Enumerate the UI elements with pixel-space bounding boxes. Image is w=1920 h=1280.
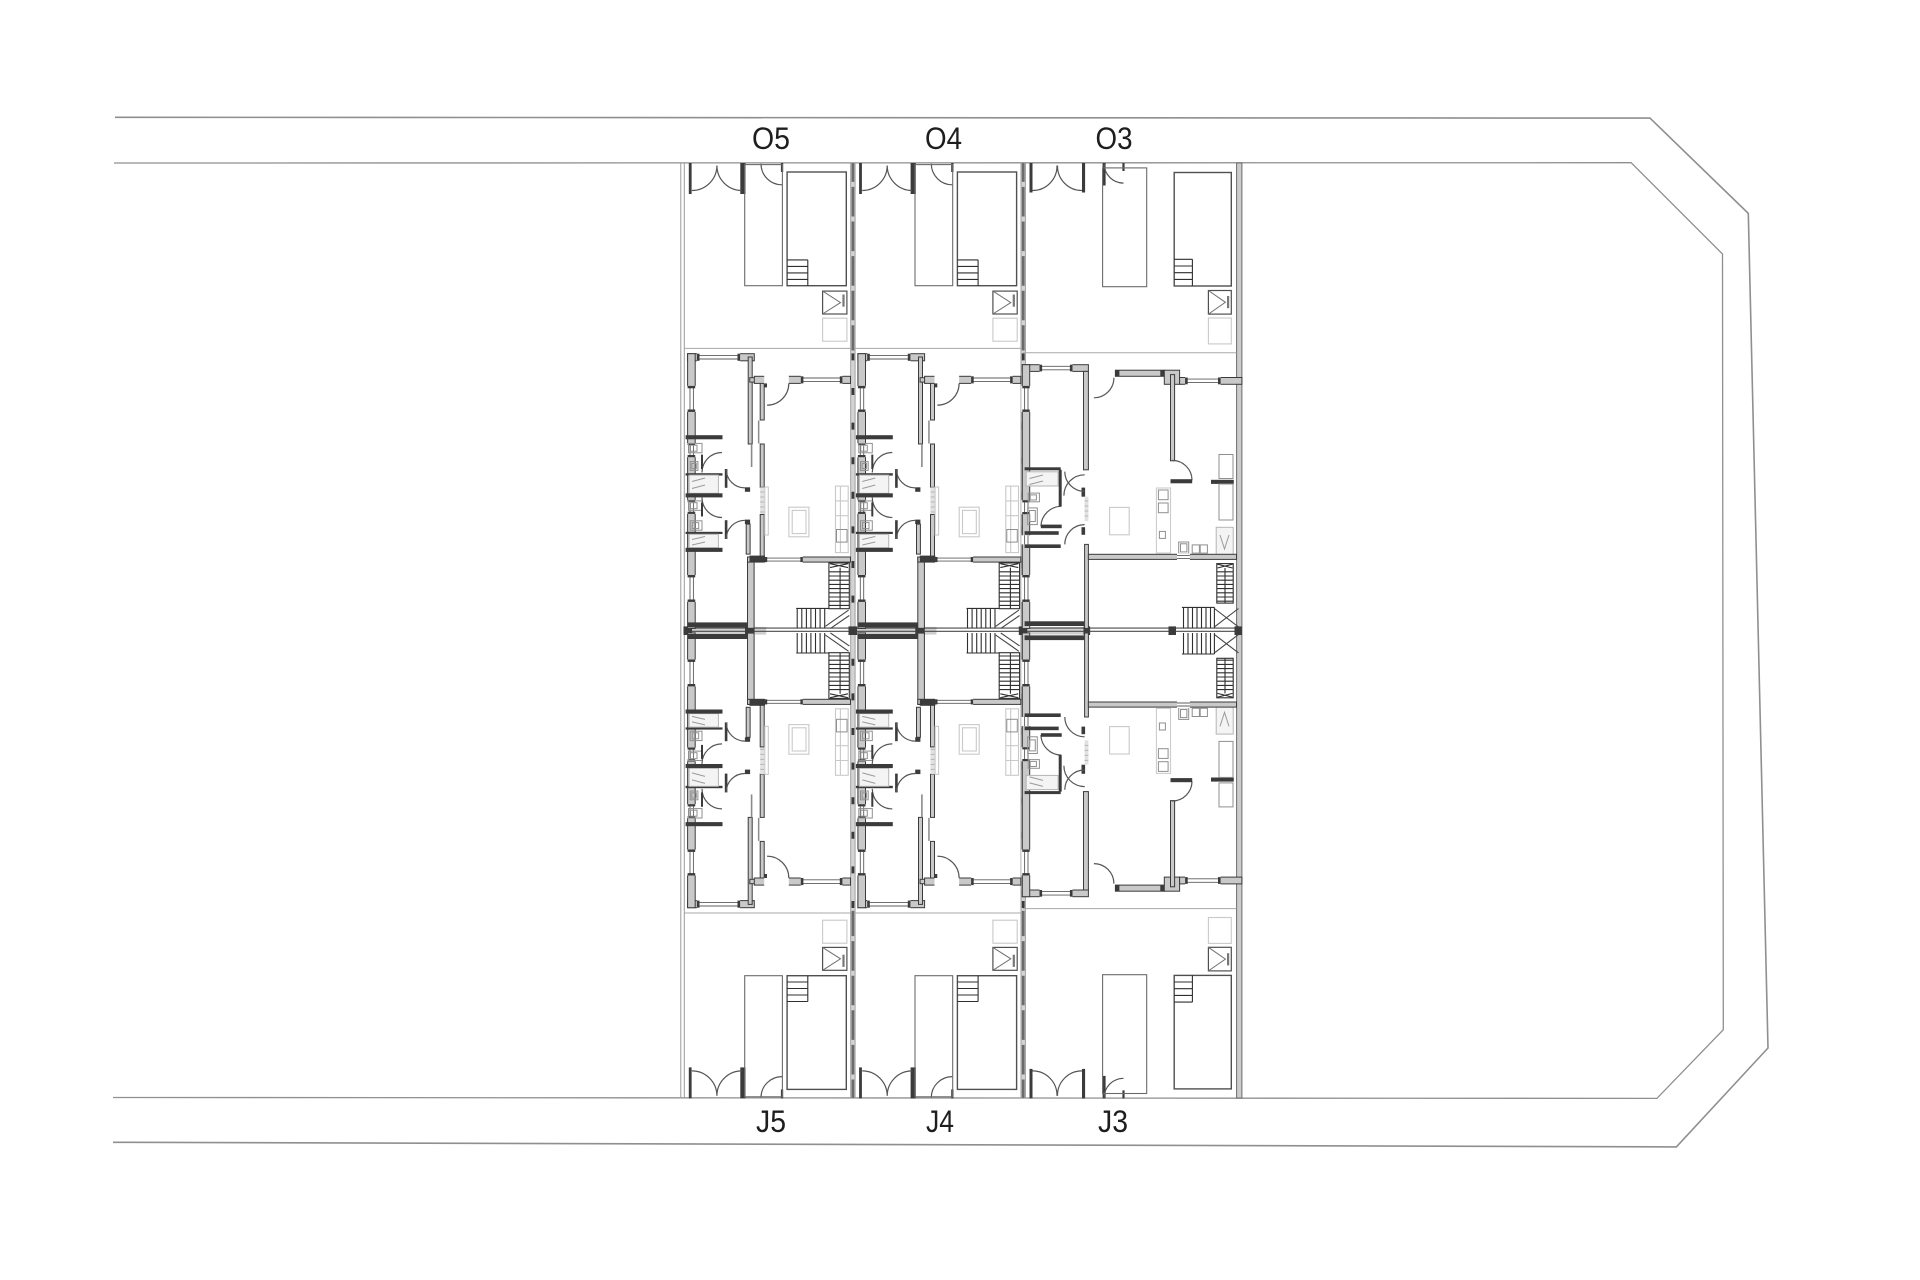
svg-text:O5: O5: [752, 120, 790, 156]
svg-text:J5: J5: [756, 1103, 786, 1139]
svg-text:O4: O4: [925, 120, 962, 156]
svg-text:O3: O3: [1096, 120, 1133, 156]
svg-text:J3: J3: [1098, 1103, 1128, 1139]
svg-text:J4: J4: [926, 1103, 954, 1139]
